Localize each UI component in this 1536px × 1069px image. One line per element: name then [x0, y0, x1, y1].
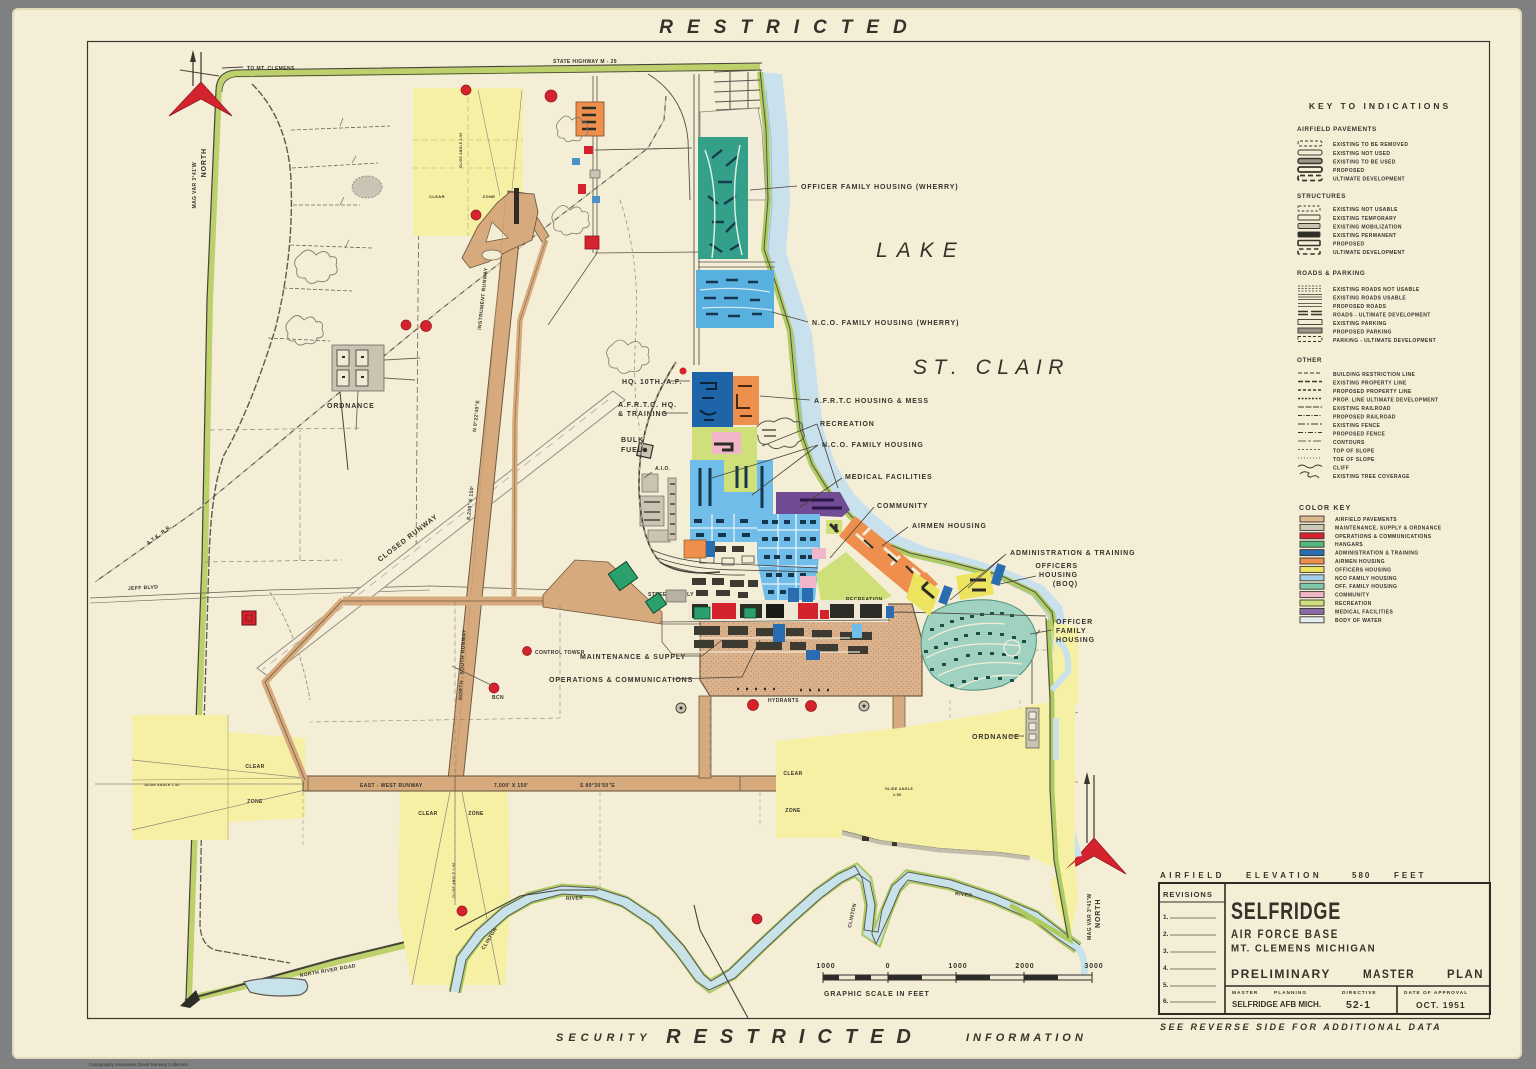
svg-text:FEET: FEET — [1394, 871, 1426, 880]
svg-text:ZONE: ZONE — [785, 808, 801, 814]
svg-text:EXISTING ROADS NOT USABLE: EXISTING ROADS NOT USABLE — [1333, 287, 1420, 293]
svg-text:RECREATION: RECREATION — [1335, 601, 1372, 607]
svg-text:INFORMATION: INFORMATION — [966, 1032, 1087, 1044]
svg-text:1:50: 1:50 — [893, 793, 902, 797]
svg-text:& TRAINING: & TRAINING — [618, 411, 668, 418]
svg-text:3.: 3. — [1163, 948, 1169, 955]
svg-text:CLEAR: CLEAR — [245, 764, 264, 770]
svg-text:OPERATIONS & COMMUNICATIONS: OPERATIONS & COMMUNICATIONS — [549, 677, 693, 684]
svg-text:GLIDE ANGLE 1:50: GLIDE ANGLE 1:50 — [459, 132, 463, 167]
svg-text:ULTIMATE DEVELOPMENT: ULTIMATE DEVELOPMENT — [1333, 250, 1405, 256]
svg-text:AIRFIELD PAVEMENTS: AIRFIELD PAVEMENTS — [1297, 126, 1377, 133]
svg-text:ORDNANCE: ORDNANCE — [327, 403, 375, 410]
svg-text:OFFICER: OFFICER — [1056, 619, 1093, 626]
svg-text:MAG VAR 3°41'W: MAG VAR 3°41'W — [192, 162, 198, 208]
svg-text:FAMILY: FAMILY — [1056, 628, 1086, 635]
svg-text:ELEVATION: ELEVATION — [1246, 871, 1322, 880]
svg-text:HYDRANTS: HYDRANTS — [768, 698, 799, 704]
svg-text:GLIDE ANGLE: GLIDE ANGLE — [885, 787, 913, 791]
svg-text:S 89°30'50"E: S 89°30'50"E — [580, 783, 615, 789]
svg-text:1000: 1000 — [948, 963, 967, 970]
svg-text:CLEAR: CLEAR — [783, 771, 802, 777]
svg-text:HQ. 10TH. A.F.: HQ. 10TH. A.F. — [622, 379, 682, 386]
svg-text:RECREATION: RECREATION — [820, 421, 875, 428]
svg-text:OTHER: OTHER — [1297, 357, 1322, 364]
svg-text:NORTH: NORTH — [1095, 899, 1102, 928]
svg-text:ZONE: ZONE — [483, 194, 496, 199]
svg-text:EXISTING MOBILIZATION: EXISTING MOBILIZATION — [1333, 225, 1402, 231]
svg-text:REVISIONS: REVISIONS — [1163, 890, 1213, 899]
svg-text:EXISTING FENCE: EXISTING FENCE — [1333, 423, 1381, 429]
svg-text:MEDICAL FACILITIES: MEDICAL FACILITIES — [1335, 609, 1393, 615]
svg-text:EXISTING ROADS USABLE: EXISTING ROADS USABLE — [1333, 296, 1406, 302]
svg-text:DIRECTIVE: DIRECTIVE — [1342, 990, 1377, 996]
svg-text:TO MT. CLEMENS: TO MT. CLEMENS — [247, 66, 295, 72]
svg-text:5.: 5. — [1163, 982, 1169, 989]
svg-text:PROPOSED PROPERTY LINE: PROPOSED PROPERTY LINE — [1333, 389, 1412, 395]
svg-text:CLEAR: CLEAR — [429, 194, 445, 199]
svg-text:OFF. FAMILY HOUSING: OFF. FAMILY HOUSING — [1335, 584, 1397, 590]
svg-text:MAINTENANCE, SUPPLY & ORDNA: MAINTENANCE, SUPPLY & ORDNANCE — [1335, 525, 1442, 531]
svg-text:PROP. LINE ULTIMATE DEVELOPM: PROP. LINE ULTIMATE DEVELOPMENT — [1333, 398, 1438, 404]
svg-text:A.F.R.T.C HOUSING & MESS: A.F.R.T.C HOUSING & MESS — [814, 398, 929, 405]
svg-text:EXISTING PROPERTY LINE: EXISTING PROPERTY LINE — [1333, 381, 1407, 387]
svg-text:MASTER: MASTER — [1363, 969, 1415, 981]
svg-text:PLANNING: PLANNING — [1274, 990, 1307, 996]
svg-text:2000: 2000 — [1015, 963, 1034, 970]
svg-text:STRUCTURES: STRUCTURES — [1297, 193, 1346, 200]
svg-text:BODY OF WATER: BODY OF WATER — [1335, 618, 1382, 624]
svg-text:ROADS & PARKING: ROADS & PARKING — [1297, 270, 1365, 277]
svg-text:GRAPHIC SCALE IN FEET: GRAPHIC SCALE IN FEET — [824, 991, 930, 998]
svg-text:ADMINISTRATION & TRAINING: ADMINISTRATION & TRAINING — [1335, 551, 1419, 557]
svg-text:ROADS - ULTIMATE DEVELOPMENT: ROADS - ULTIMATE DEVELOPMENT — [1333, 313, 1431, 319]
svg-text:CLIFF: CLIFF — [1333, 466, 1349, 472]
svg-text:6.: 6. — [1163, 998, 1169, 1005]
svg-text:EXISTING NOT USABLE: EXISTING NOT USABLE — [1333, 207, 1398, 213]
svg-text:HANGARS: HANGARS — [1335, 542, 1363, 548]
svg-text:OCT. 1951: OCT. 1951 — [1416, 1000, 1466, 1010]
svg-text:OFFICERS: OFFICERS — [1035, 563, 1078, 570]
svg-text:4.: 4. — [1163, 965, 1169, 972]
svg-text:BUILDING RESTRICTION LINE: BUILDING RESTRICTION LINE — [1333, 372, 1415, 378]
svg-text:ULTIMATE DEVELOPMENT: ULTIMATE DEVELOPMENT — [1333, 177, 1405, 183]
svg-text:AIRMEN HOUSING: AIRMEN HOUSING — [912, 523, 987, 530]
svg-text:NORTH: NORTH — [201, 148, 208, 177]
svg-text:COMMUNITY: COMMUNITY — [877, 503, 928, 510]
svg-text:ADMINISTRATION & TRAINING: ADMINISTRATION & TRAINING — [1010, 550, 1135, 557]
svg-text:SECURITY: SECURITY — [556, 1032, 652, 1044]
svg-text:OFFICER FAMILY HOUSING: OFFICER FAMILY HOUSING (WHERRY) — [801, 184, 959, 191]
svg-text:A.I.O.: A.I.O. — [655, 466, 671, 472]
svg-text:PROPOSED ROADS: PROPOSED ROADS — [1333, 304, 1387, 310]
svg-text:EXISTING TREE COVERAGE: EXISTING TREE COVERAGE — [1333, 474, 1410, 480]
svg-text:MT. CLEMENS MICHIGAN: MT. CLEMENS MICHIGAN — [1231, 943, 1376, 955]
svg-text:MEDICAL FACILITIES: MEDICAL FACILITIES — [845, 474, 933, 481]
svg-text:EXISTING TO BE REMOVED: EXISTING TO BE REMOVED — [1333, 142, 1408, 148]
svg-text:ZONE: ZONE — [468, 811, 484, 817]
svg-text:52-1: 52-1 — [1346, 999, 1371, 1011]
svg-text:AIRMEN HOUSING: AIRMEN HOUSING — [1335, 559, 1385, 565]
svg-text:PROPOSED PARKING: PROPOSED PARKING — [1333, 330, 1392, 336]
svg-text:OFFICERS HOUSING: OFFICERS HOUSING — [1335, 567, 1391, 573]
svg-text:PROPOSED: PROPOSED — [1333, 168, 1365, 174]
svg-text:STATE HIGHWAY M - 29: STATE HIGHWAY M - 29 — [553, 59, 617, 65]
svg-text:RESTRICTED: RESTRICTED — [666, 1026, 924, 1048]
svg-text:PROPOSED RAILROAD: PROPOSED RAILROAD — [1333, 415, 1396, 421]
svg-text:PLAN: PLAN — [1447, 969, 1484, 981]
svg-text:LAKE: LAKE — [876, 239, 966, 262]
svg-text:EXISTING PARKING: EXISTING PARKING — [1333, 321, 1387, 327]
svg-text:NCO FAMILY HOUSING: NCO FAMILY HOUSING — [1335, 576, 1397, 582]
svg-text:CONTOURS: CONTOURS — [1333, 440, 1365, 446]
svg-text:EXISTING PERMANENT: EXISTING PERMANENT — [1333, 233, 1397, 239]
svg-text:COMMUNITY: COMMUNITY — [1335, 593, 1370, 599]
svg-text:EXISTING TEMPORARY: EXISTING TEMPORARY — [1333, 216, 1397, 222]
svg-text:EAST - WEST RUNWAY: EAST - WEST RUNWAY — [360, 783, 423, 789]
svg-text:A.F.R.T.C. HQ.: A.F.R.T.C. HQ. — [618, 402, 677, 409]
svg-text:OPERATIONS & COMMUNICATIONS: OPERATIONS & COMMUNICATIONS — [1335, 534, 1432, 540]
svg-text:(BOQ): (BOQ) — [1053, 581, 1078, 588]
svg-text:HOUSING: HOUSING — [1056, 637, 1095, 644]
svg-text:EXISTING RAILROAD: EXISTING RAILROAD — [1333, 406, 1391, 412]
svg-text:HOUSING: HOUSING — [1039, 572, 1078, 579]
svg-text:SELFRIDGE AFB MICH.: SELFRIDGE AFB MICH. — [1232, 1000, 1321, 1009]
svg-text:PROPOSED FENCE: PROPOSED FENCE — [1333, 432, 1386, 438]
svg-text:AIRFIELD: AIRFIELD — [1160, 871, 1225, 880]
svg-text:580: 580 — [1352, 871, 1371, 880]
svg-text:3000: 3000 — [1084, 963, 1103, 970]
svg-text:RIVER: RIVER — [566, 895, 583, 902]
svg-text:7,000' X 150': 7,000' X 150' — [494, 783, 529, 789]
svg-text:FUEL: FUEL — [621, 447, 643, 454]
svg-text:SELFRIDGE: SELFRIDGE — [1231, 898, 1341, 925]
svg-text:COLOR KEY: COLOR KEY — [1299, 505, 1351, 512]
svg-text:1.: 1. — [1163, 914, 1169, 921]
svg-text:1000: 1000 — [816, 963, 835, 970]
svg-text:Cartography Associates David: Cartography Associates David Rumsey Coll… — [89, 1062, 189, 1067]
svg-text:PROPOSED: PROPOSED — [1333, 242, 1365, 248]
svg-text:TOE OF SLOPE: TOE OF SLOPE — [1333, 457, 1375, 463]
svg-text:KEY TO INDICATIONS: KEY TO INDICATIONS — [1309, 101, 1451, 111]
svg-text:CLEAR: CLEAR — [418, 811, 437, 817]
svg-text:PRELIMINARY: PRELIMINARY — [1231, 969, 1331, 981]
svg-text:RESTRICTED: RESTRICTED — [659, 17, 920, 38]
svg-text:BULK: BULK — [621, 437, 644, 444]
svg-text:MAG VAR 3°41'W: MAG VAR 3°41'W — [1087, 894, 1093, 940]
svg-text:EXISTING TO BE USED: EXISTING TO BE USED — [1333, 160, 1396, 166]
svg-text:AIRFIELD PAVEMENTS: AIRFIELD PAVEMENTS — [1335, 517, 1397, 523]
svg-text:N.C.O. FAMILY HOUSING: N.C.O. FAMILY HOUSING — [822, 442, 924, 449]
svg-text:0: 0 — [886, 963, 891, 970]
svg-text:MASTER: MASTER — [1232, 990, 1258, 996]
svg-text:TOP OF SLOPE: TOP OF SLOPE — [1333, 449, 1375, 455]
svg-text:AIR FORCE BASE: AIR FORCE BASE — [1231, 929, 1339, 941]
svg-text:PARKING - ULTIMATE DEVELOPMEN: PARKING - ULTIMATE DEVELOPMENT — [1333, 338, 1436, 344]
svg-text:GLIDE ANGLE 1:50: GLIDE ANGLE 1:50 — [144, 783, 179, 787]
svg-text:ORDNANCE: ORDNANCE — [972, 734, 1020, 741]
svg-text:2.: 2. — [1163, 931, 1169, 938]
svg-text:SEE REVERSE SIDE FOR A: SEE REVERSE SIDE FOR ADDITIONAL DATA — [1160, 1022, 1442, 1032]
svg-text:EXISTING NOT USED: EXISTING NOT USED — [1333, 151, 1390, 157]
svg-text:MAINTENANCE & SUPPLY: MAINTENANCE & SUPPLY — [580, 654, 686, 661]
svg-text:BCN: BCN — [492, 695, 504, 701]
svg-text:ST. CLAIR: ST. CLAIR — [913, 356, 1070, 379]
svg-text:DATE OF APPROVAL: DATE OF APPROVAL — [1404, 990, 1468, 996]
svg-text:N.C.O. FAMILY HOUSING (W: N.C.O. FAMILY HOUSING (WHERRY) — [812, 320, 959, 327]
